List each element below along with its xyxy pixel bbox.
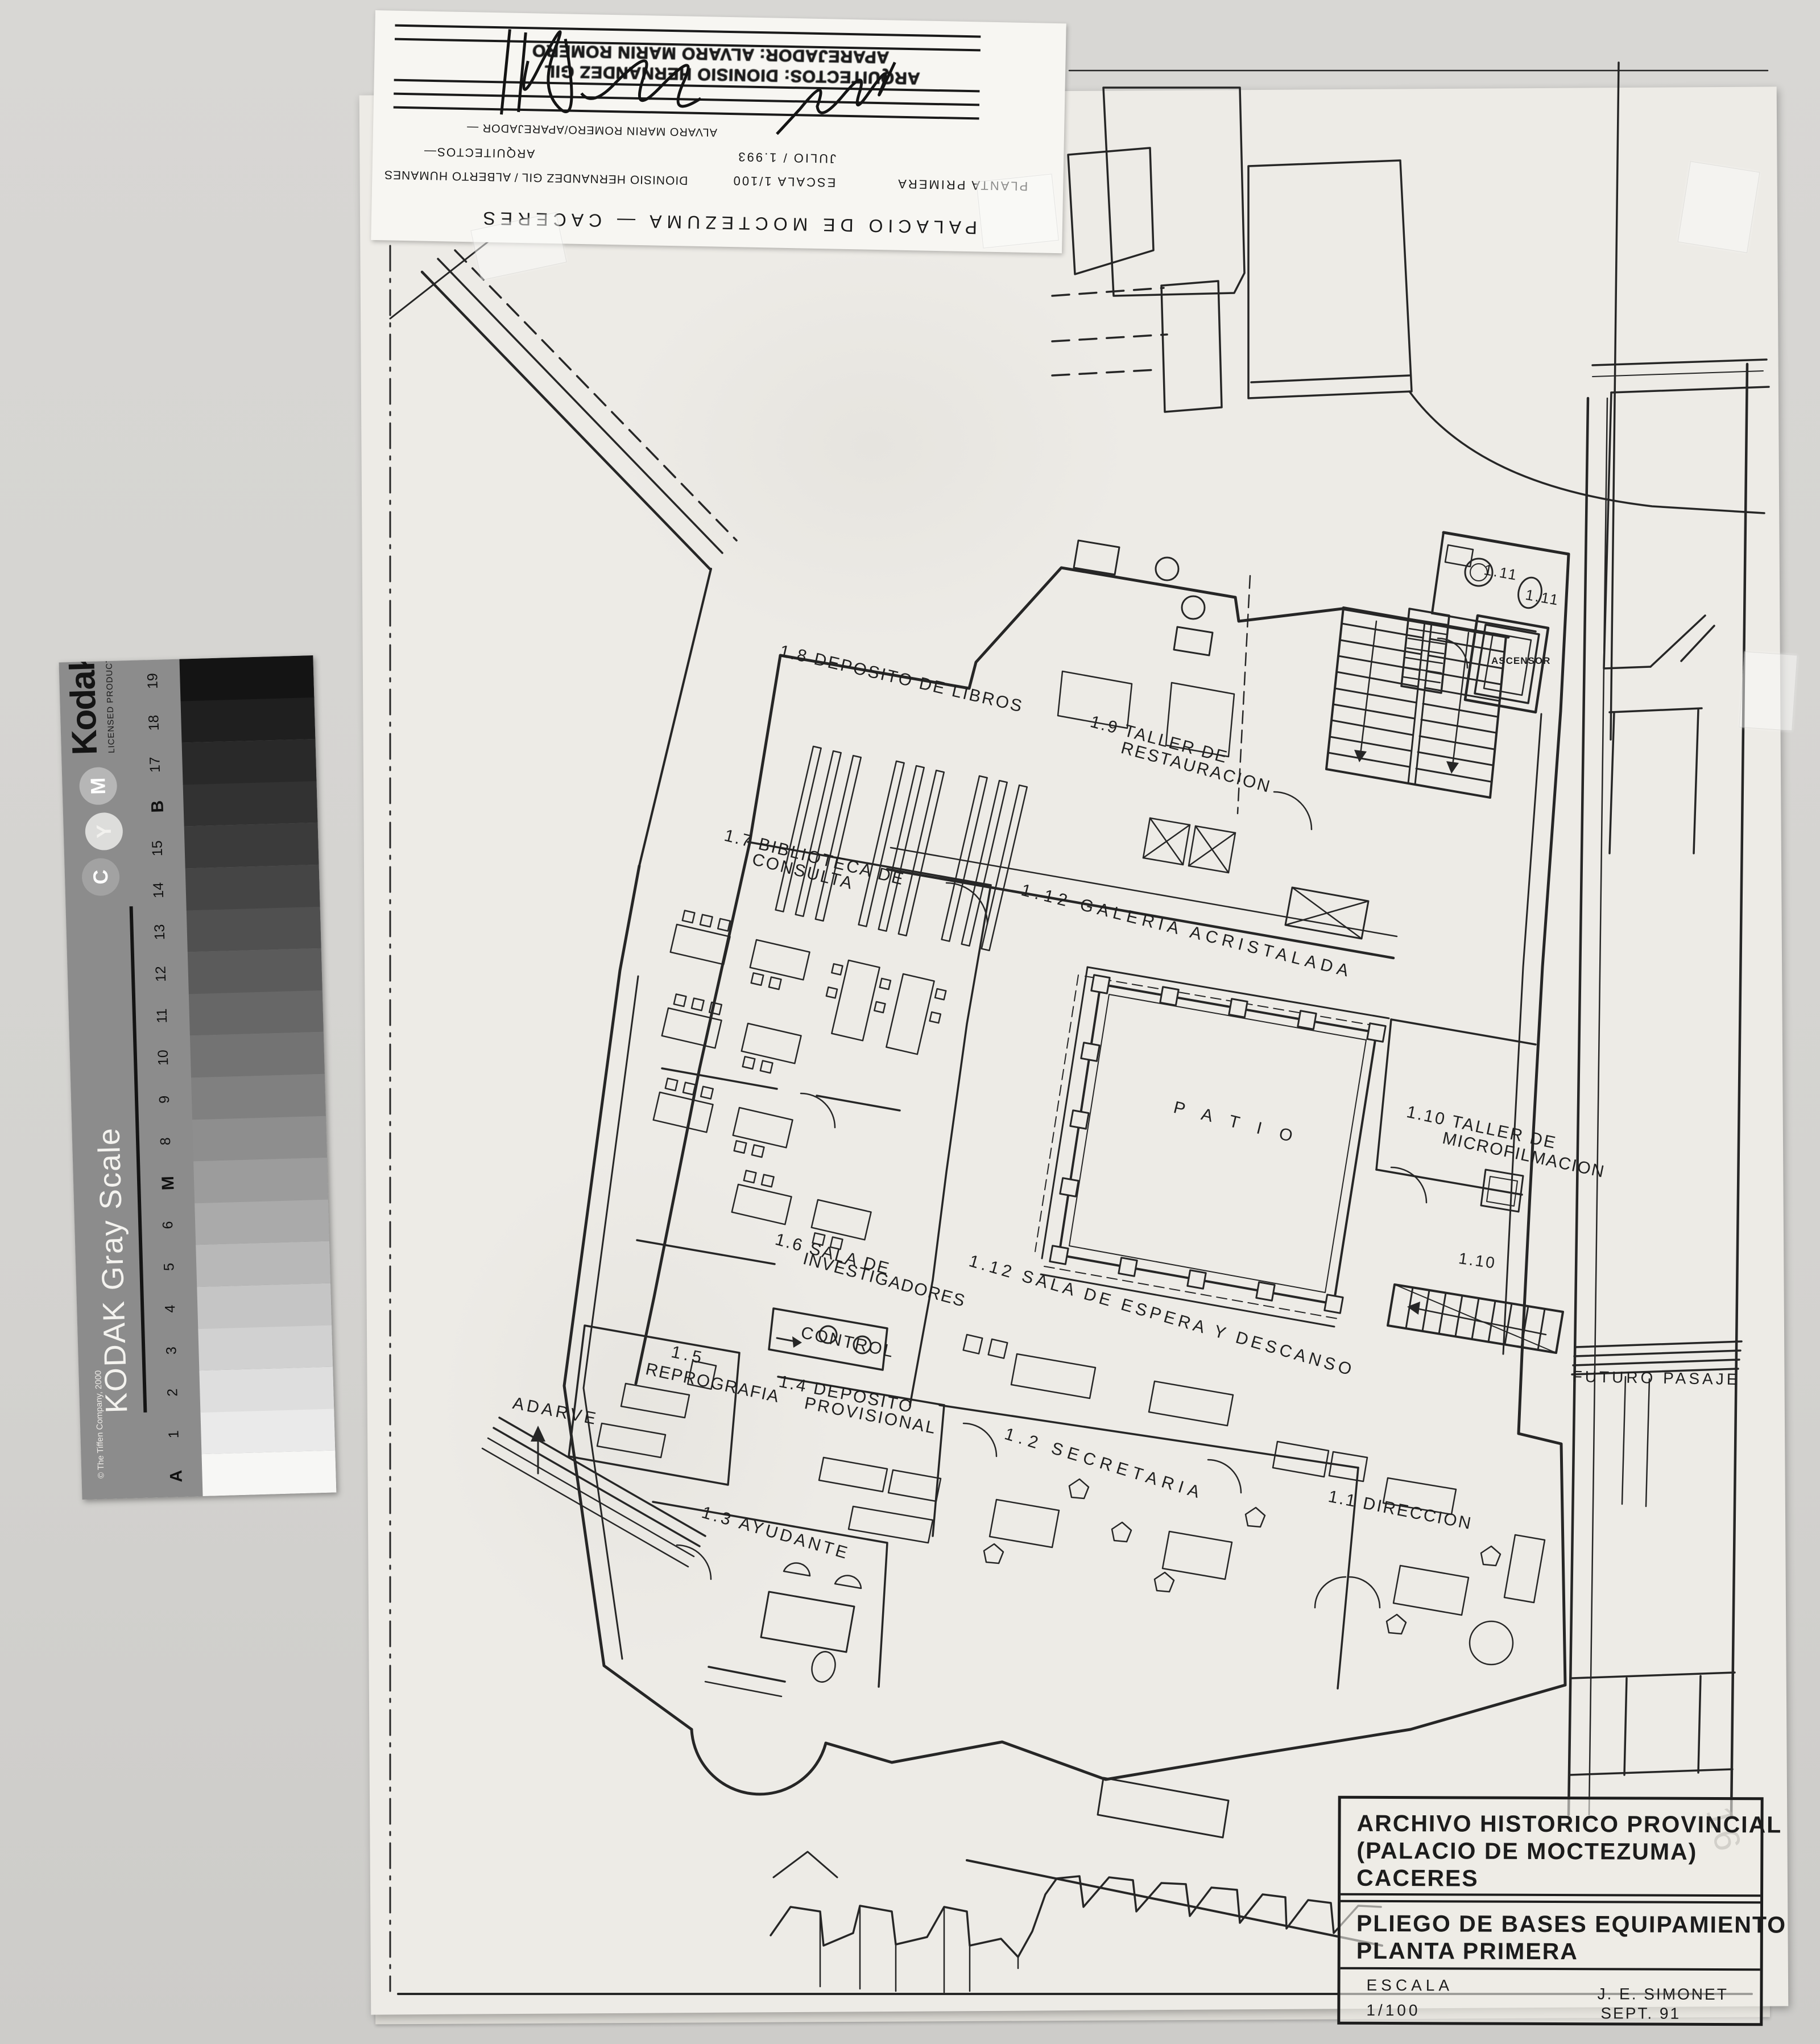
assistant-furniture: [761, 1563, 861, 1684]
kodak-strip-content: © The Tiffen Company, 2000 KODAK Gray Sc…: [59, 655, 337, 1500]
kodak-gray-patch: [200, 1409, 335, 1455]
outer-walls: [564, 532, 1569, 1794]
title-block-line1: ARCHIVO HISTORICO PROVINCIAL: [1356, 1810, 1782, 1839]
kodak-step-label: 6: [159, 1204, 177, 1246]
kodak-gray-patch: [183, 781, 318, 827]
lower-stair: [1388, 1285, 1563, 1353]
kodak-gray-patch: [179, 655, 314, 701]
title-block-escala-label: ESCALA: [1366, 1976, 1453, 1995]
title-block-line2: (PALACIO DE MOCTEZUMA): [1356, 1837, 1697, 1865]
kodak-gray-patch: [192, 1116, 327, 1162]
kodak-step-label: 1: [165, 1413, 183, 1455]
title-block-divider: [1341, 1900, 1760, 1904]
title-block-escala-value: 1/100: [1366, 2001, 1420, 2020]
kodak-step-label: 15: [149, 827, 167, 869]
kodak-step-label: 18: [146, 702, 163, 744]
kodak-step-label: 19: [144, 660, 162, 702]
kodak-gray-patch: [188, 948, 322, 994]
kodak-step-label: A: [167, 1455, 187, 1497]
title-block-line5: PLANTA PRIMERA: [1356, 1938, 1578, 1965]
tape-piece: [1678, 161, 1760, 253]
secondary-stair: [1401, 609, 1449, 693]
kodak-gray-patch: [196, 1241, 330, 1287]
kodak-gray-patch: [187, 906, 321, 952]
inner-walls: [569, 576, 1536, 1837]
futuro-pasaje-band: [1569, 364, 1747, 1818]
kodak-step-label: 3: [163, 1329, 180, 1372]
adarve-walk: [482, 1418, 705, 1567]
kodak-gray-patch: [198, 1325, 333, 1371]
title-block-date: SEPT. 91: [1600, 2004, 1681, 2022]
title-block-divider: [1341, 1893, 1760, 1897]
kodak-step-label: 8: [157, 1120, 175, 1162]
kodak-step-label: 11: [154, 995, 171, 1037]
scanned-floor-plan-photo: 1.8 DEPOSITO DE LIBROS 1.9 TALLER DE RES…: [0, 0, 1820, 2044]
taped-title-strip: PALACIO DE MOCTEZUMA — CACERES PLANTA PR…: [371, 10, 1066, 253]
site-label-futuro-pasaje: FUTURO PASAJE: [1572, 1368, 1740, 1389]
kodak-gray-patch: [201, 1451, 336, 1497]
kodak-gray-patch: [193, 1158, 328, 1204]
title-block-author: J. E. SIMONET: [1597, 1985, 1728, 2004]
sheet-border: [390, 71, 1768, 1994]
secretary-furniture: [984, 1442, 1367, 1592]
title-block-divider: [1341, 1967, 1760, 1971]
kodak-step-label: B: [148, 786, 168, 828]
room-label-ascensor: ASCENSOR: [1491, 655, 1550, 667]
patio-courtyard: [1035, 967, 1389, 1327]
kodak-gray-patch: [191, 1073, 326, 1120]
kodak-step-label: 9: [156, 1079, 173, 1121]
kodak-step-label: 13: [151, 911, 169, 953]
roof-diagonals: [422, 250, 737, 866]
signature-scribble: [371, 10, 1066, 253]
kodak-gray-patch: [189, 990, 324, 1036]
kodak-step-label: 5: [160, 1246, 178, 1288]
kodak-gray-patch: [185, 865, 320, 911]
rubble-wall: [771, 1852, 1382, 1992]
kodak-gray-patch: [180, 697, 315, 743]
kodak-gray-patch: [182, 739, 317, 785]
tape-piece: [1739, 651, 1797, 731]
waiting-room-benches: [963, 1335, 1233, 1426]
kodak-steps: A123456M89101112131415B171819: [59, 655, 337, 1500]
kodak-step-label: 17: [147, 744, 164, 786]
provisional-depot-shelves: [819, 1457, 941, 1543]
kodak-step-label: M: [158, 1162, 179, 1204]
kodak-gray-patch: [184, 823, 319, 869]
title-block-line4: PLIEGO DE BASES EQUIPAMIENTO: [1356, 1910, 1786, 1939]
kodak-step-label: 4: [162, 1288, 179, 1330]
kodak-gray-patch: [195, 1199, 329, 1245]
kodak-gray-patch: [190, 1032, 325, 1078]
title-strip-content: PALACIO DE MOCTEZUMA — CACERES PLANTA PR…: [371, 10, 1066, 253]
kodak-step-label: 14: [150, 869, 168, 911]
kodak-gray-scale-strip: © The Tiffen Company, 2000 KODAK Gray Sc…: [59, 655, 337, 1500]
kodak-gray-patch: [199, 1366, 334, 1413]
title-block-line3: CACERES: [1356, 1865, 1479, 1892]
kodak-step-label: 12: [152, 953, 170, 995]
tape-piece: [976, 174, 1059, 248]
control-arrow: [777, 1336, 802, 1348]
kodak-gray-patch: [197, 1283, 332, 1329]
kodak-step-label: 2: [164, 1372, 181, 1414]
title-block: ARCHIVO HISTORICO PROVINCIAL (PALACIO DE…: [1337, 1796, 1763, 2026]
kodak-step-label: 10: [155, 1037, 172, 1079]
